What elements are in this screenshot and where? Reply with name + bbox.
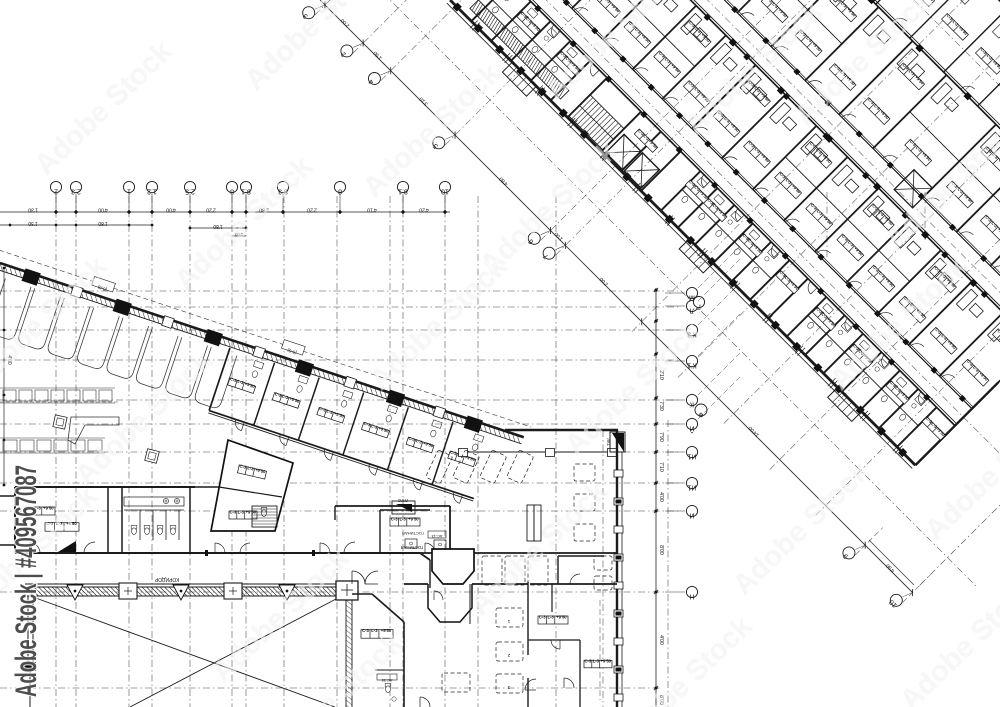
- svg-text:ГОСТИНАЯ: ГОСТИНАЯ: [402, 531, 424, 536]
- svg-text:1′30: 1′30: [28, 220, 37, 226]
- svg-text:Adobe Stock | #409567087: Adobe Stock | #409567087: [10, 465, 43, 697]
- svg-text:К’1: К’1: [687, 362, 697, 369]
- svg-text:4′00: 4′00: [658, 635, 664, 645]
- svg-text:7′30: 7′30: [658, 401, 664, 411]
- svg-text:L-3: L-3: [371, 628, 378, 633]
- svg-text:Й: Й: [689, 425, 694, 434]
- svg-text:И1: И1: [687, 453, 696, 460]
- svg-text:L-3: L-3: [238, 509, 245, 514]
- svg-text:L-3: L-3: [547, 614, 554, 619]
- svg-text:4′10: 4′10: [367, 207, 377, 213]
- svg-text:C-3: C-3: [362, 628, 369, 633]
- svg-text:И1: И1: [687, 484, 696, 491]
- svg-text:AC-38: AC-38: [382, 678, 393, 682]
- svg-text:1′30: 1′30: [28, 207, 38, 213]
- svg-text:ГОСТИНАЯ: ГОСТИНАЯ: [401, 545, 424, 550]
- svg-text:4′20: 4′20: [419, 207, 429, 213]
- svg-text:Г: Г: [697, 303, 701, 310]
- svg-text:2′20: 2′20: [307, 207, 317, 213]
- svg-text:4′00: 4′00: [658, 492, 664, 502]
- svg-text:КОРИДОР: КОРИДОР: [154, 576, 179, 582]
- svg-text:+9'50: +9'50: [601, 659, 612, 664]
- svg-text:L-3: L-3: [399, 516, 406, 521]
- svg-text:7′90: 7′90: [658, 432, 664, 442]
- svg-text:1′80: 1′80: [98, 220, 107, 226]
- svg-text:4′00: 4′00: [166, 207, 176, 213]
- svg-text:+9'50: +9'50: [556, 614, 567, 619]
- svg-text:8′00: 8′00: [658, 545, 664, 555]
- svg-text:Н: Н: [689, 593, 694, 600]
- svg-text:Л’К’С: Л’К’С: [398, 498, 408, 503]
- svg-text:AC-13: AC-13: [432, 534, 443, 538]
- svg-text:C-3: C-3: [539, 614, 546, 619]
- svg-text:Ф: Ф: [698, 411, 703, 418]
- svg-text:2′20: 2′20: [206, 207, 216, 213]
- svg-text:Л: Л: [689, 307, 694, 314]
- svg-text:C-3: C-3: [230, 509, 237, 514]
- svg-text:ЛК1: ЛК1: [606, 438, 611, 446]
- svg-text:C-3: C-3: [585, 659, 592, 664]
- svg-text:7′10: 7′10: [658, 462, 664, 472]
- svg-text:C-3: C-3: [391, 516, 398, 521]
- svg-text:+9'50: +9'50: [408, 516, 419, 521]
- svg-text:4′00: 4′00: [98, 207, 108, 213]
- svg-text:L-3: L-3: [593, 659, 600, 664]
- svg-text:И: И: [689, 512, 694, 519]
